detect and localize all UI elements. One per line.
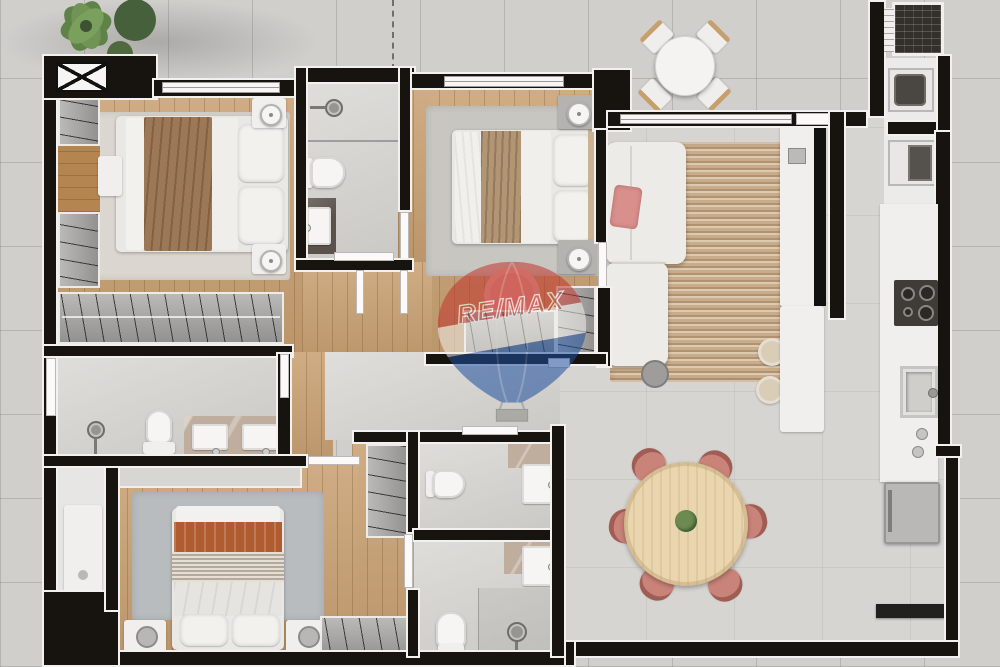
corridor-wood — [302, 262, 432, 362]
bedroom3-pillow-left — [180, 614, 228, 646]
bedroom3-shelf-cabinet — [116, 466, 302, 488]
bedroom1-sheet-fold — [126, 118, 144, 250]
utility-grill-box — [892, 2, 944, 56]
balloon-basket — [496, 409, 527, 421]
wall-bottom-right — [560, 640, 960, 658]
wall-bathroom2-top — [352, 430, 558, 444]
bedroom3-pillow-right — [232, 614, 280, 646]
bathroom3-toilet-bowl — [436, 612, 466, 648]
bathroom2-toilet-bowl — [433, 470, 465, 498]
wall-right-a — [936, 54, 952, 134]
living-counter — [780, 306, 824, 432]
bathroom3-shower-head — [507, 622, 527, 642]
kitchen-counter — [880, 204, 938, 482]
master-vanity-sink-right — [242, 424, 278, 450]
bedroom3-decor-right — [298, 626, 320, 648]
corridor-door-leaf-2 — [400, 270, 408, 314]
bedroom1-wardrobe-lower — [58, 212, 100, 288]
wall-bathroom2-left — [406, 430, 420, 534]
master-vanity-sink-left — [192, 424, 228, 450]
terrace-door — [796, 113, 832, 125]
oven-door — [908, 145, 932, 181]
wall-bath-mid — [412, 528, 558, 542]
bedroom2-lamp-top — [567, 102, 591, 126]
wall-storage-right — [104, 466, 120, 612]
sofa-seat — [606, 262, 668, 366]
side-table — [641, 360, 669, 388]
masterbath-door — [280, 354, 289, 398]
kitchen-knob-1 — [916, 428, 928, 440]
bathroom2-door — [462, 426, 518, 435]
bedroom3-fur-throw — [172, 552, 284, 582]
bedroom1-lamp-top — [260, 104, 282, 126]
bedroom1-window — [162, 82, 280, 93]
bedroom1-duvet — [212, 118, 238, 250]
master-closet-rail — [62, 316, 280, 318]
wall-bedroom2-living — [594, 128, 608, 244]
wall-bathroom3-left — [406, 588, 420, 658]
bathroom1-side-door — [400, 212, 409, 260]
bedroom1-dresser — [58, 146, 100, 212]
master-closet-rack — [58, 292, 284, 344]
bedroom3-foot-band — [176, 506, 280, 522]
wall-bathroom1-right — [398, 66, 412, 212]
dining-table-plant — [675, 510, 697, 532]
kitchen-knob-2 — [912, 446, 924, 458]
washer-door — [894, 74, 926, 106]
bathroom1-shower-head — [325, 99, 343, 117]
bedroom2-tan-blanket — [481, 131, 521, 243]
storage-cabinet-knob — [78, 570, 88, 580]
bedroom1-wardrobe-upper — [58, 96, 100, 146]
bedroom2-pillow-top — [553, 134, 593, 186]
refrigerator — [884, 482, 940, 544]
bedroom1-blanket — [144, 117, 212, 251]
bedroom3-rust-blanket — [174, 522, 282, 552]
burner-3 — [903, 307, 913, 317]
bedroom2-duvet — [521, 131, 551, 243]
bedroom2-window — [444, 76, 564, 87]
living-window — [620, 114, 792, 124]
wall-bathroom1-left — [294, 66, 308, 270]
bedroom1-pillow-top — [238, 124, 284, 182]
burner-2 — [919, 285, 935, 301]
master-shower-head — [87, 421, 105, 439]
sofa-cushion-line-1 — [610, 262, 666, 264]
bedroom1-lamp-bottom — [260, 250, 282, 272]
kitchen-low-console — [876, 604, 948, 618]
projection-dashed-line — [392, 0, 394, 70]
bedroom2-sheet-fold — [455, 132, 481, 242]
wall-baths-right — [550, 424, 566, 658]
bathroom3-door — [404, 534, 413, 588]
master-toilet-tank — [143, 442, 175, 454]
bathroom1-glass-partition — [306, 140, 398, 142]
refrigerator-handle — [888, 490, 892, 532]
bedroom1-bench — [98, 156, 122, 196]
wall-bottom-left — [108, 650, 566, 667]
shaft-x-symbol — [56, 62, 108, 92]
master-toilet-bowl — [146, 410, 172, 444]
wall-right-step — [934, 444, 962, 458]
bedroom1-pillow-bottom — [238, 186, 284, 244]
bedroom3-duvet — [174, 582, 282, 616]
bedroom3-door — [308, 456, 360, 465]
wall-right-c — [944, 444, 960, 656]
wall-masterbath-top — [42, 344, 294, 358]
hallway-closet-rack — [366, 444, 410, 538]
burner-1 — [901, 287, 915, 301]
kitchen-faucet — [928, 388, 938, 398]
wall-left — [42, 54, 58, 626]
bedroom2-pillow-bottom — [553, 190, 593, 242]
master-shower-stem — [94, 438, 97, 454]
remax-balloon-watermark: RE/MAX — [424, 256, 600, 424]
bathroom1-shower-stem — [310, 106, 326, 109]
terrace-table — [655, 36, 715, 96]
entry-door-left — [46, 358, 56, 416]
bedroom3-decor-left — [136, 626, 158, 648]
bathroom1-toilet-bowl — [311, 157, 345, 188]
burner-4 — [918, 305, 934, 321]
corridor-door-leaf-1 — [356, 270, 364, 314]
storage-cabinet — [64, 505, 102, 597]
floor-plan: RE/MAX — [0, 0, 1000, 667]
bathroom1-door — [334, 252, 394, 261]
sofa-pink-pillow — [609, 184, 643, 229]
wall-masterbath-bottom — [42, 454, 308, 468]
wall-living-kitchen — [828, 110, 846, 320]
wall-device — [788, 148, 806, 164]
utility-louvers — [884, 8, 894, 52]
tv — [814, 120, 826, 306]
